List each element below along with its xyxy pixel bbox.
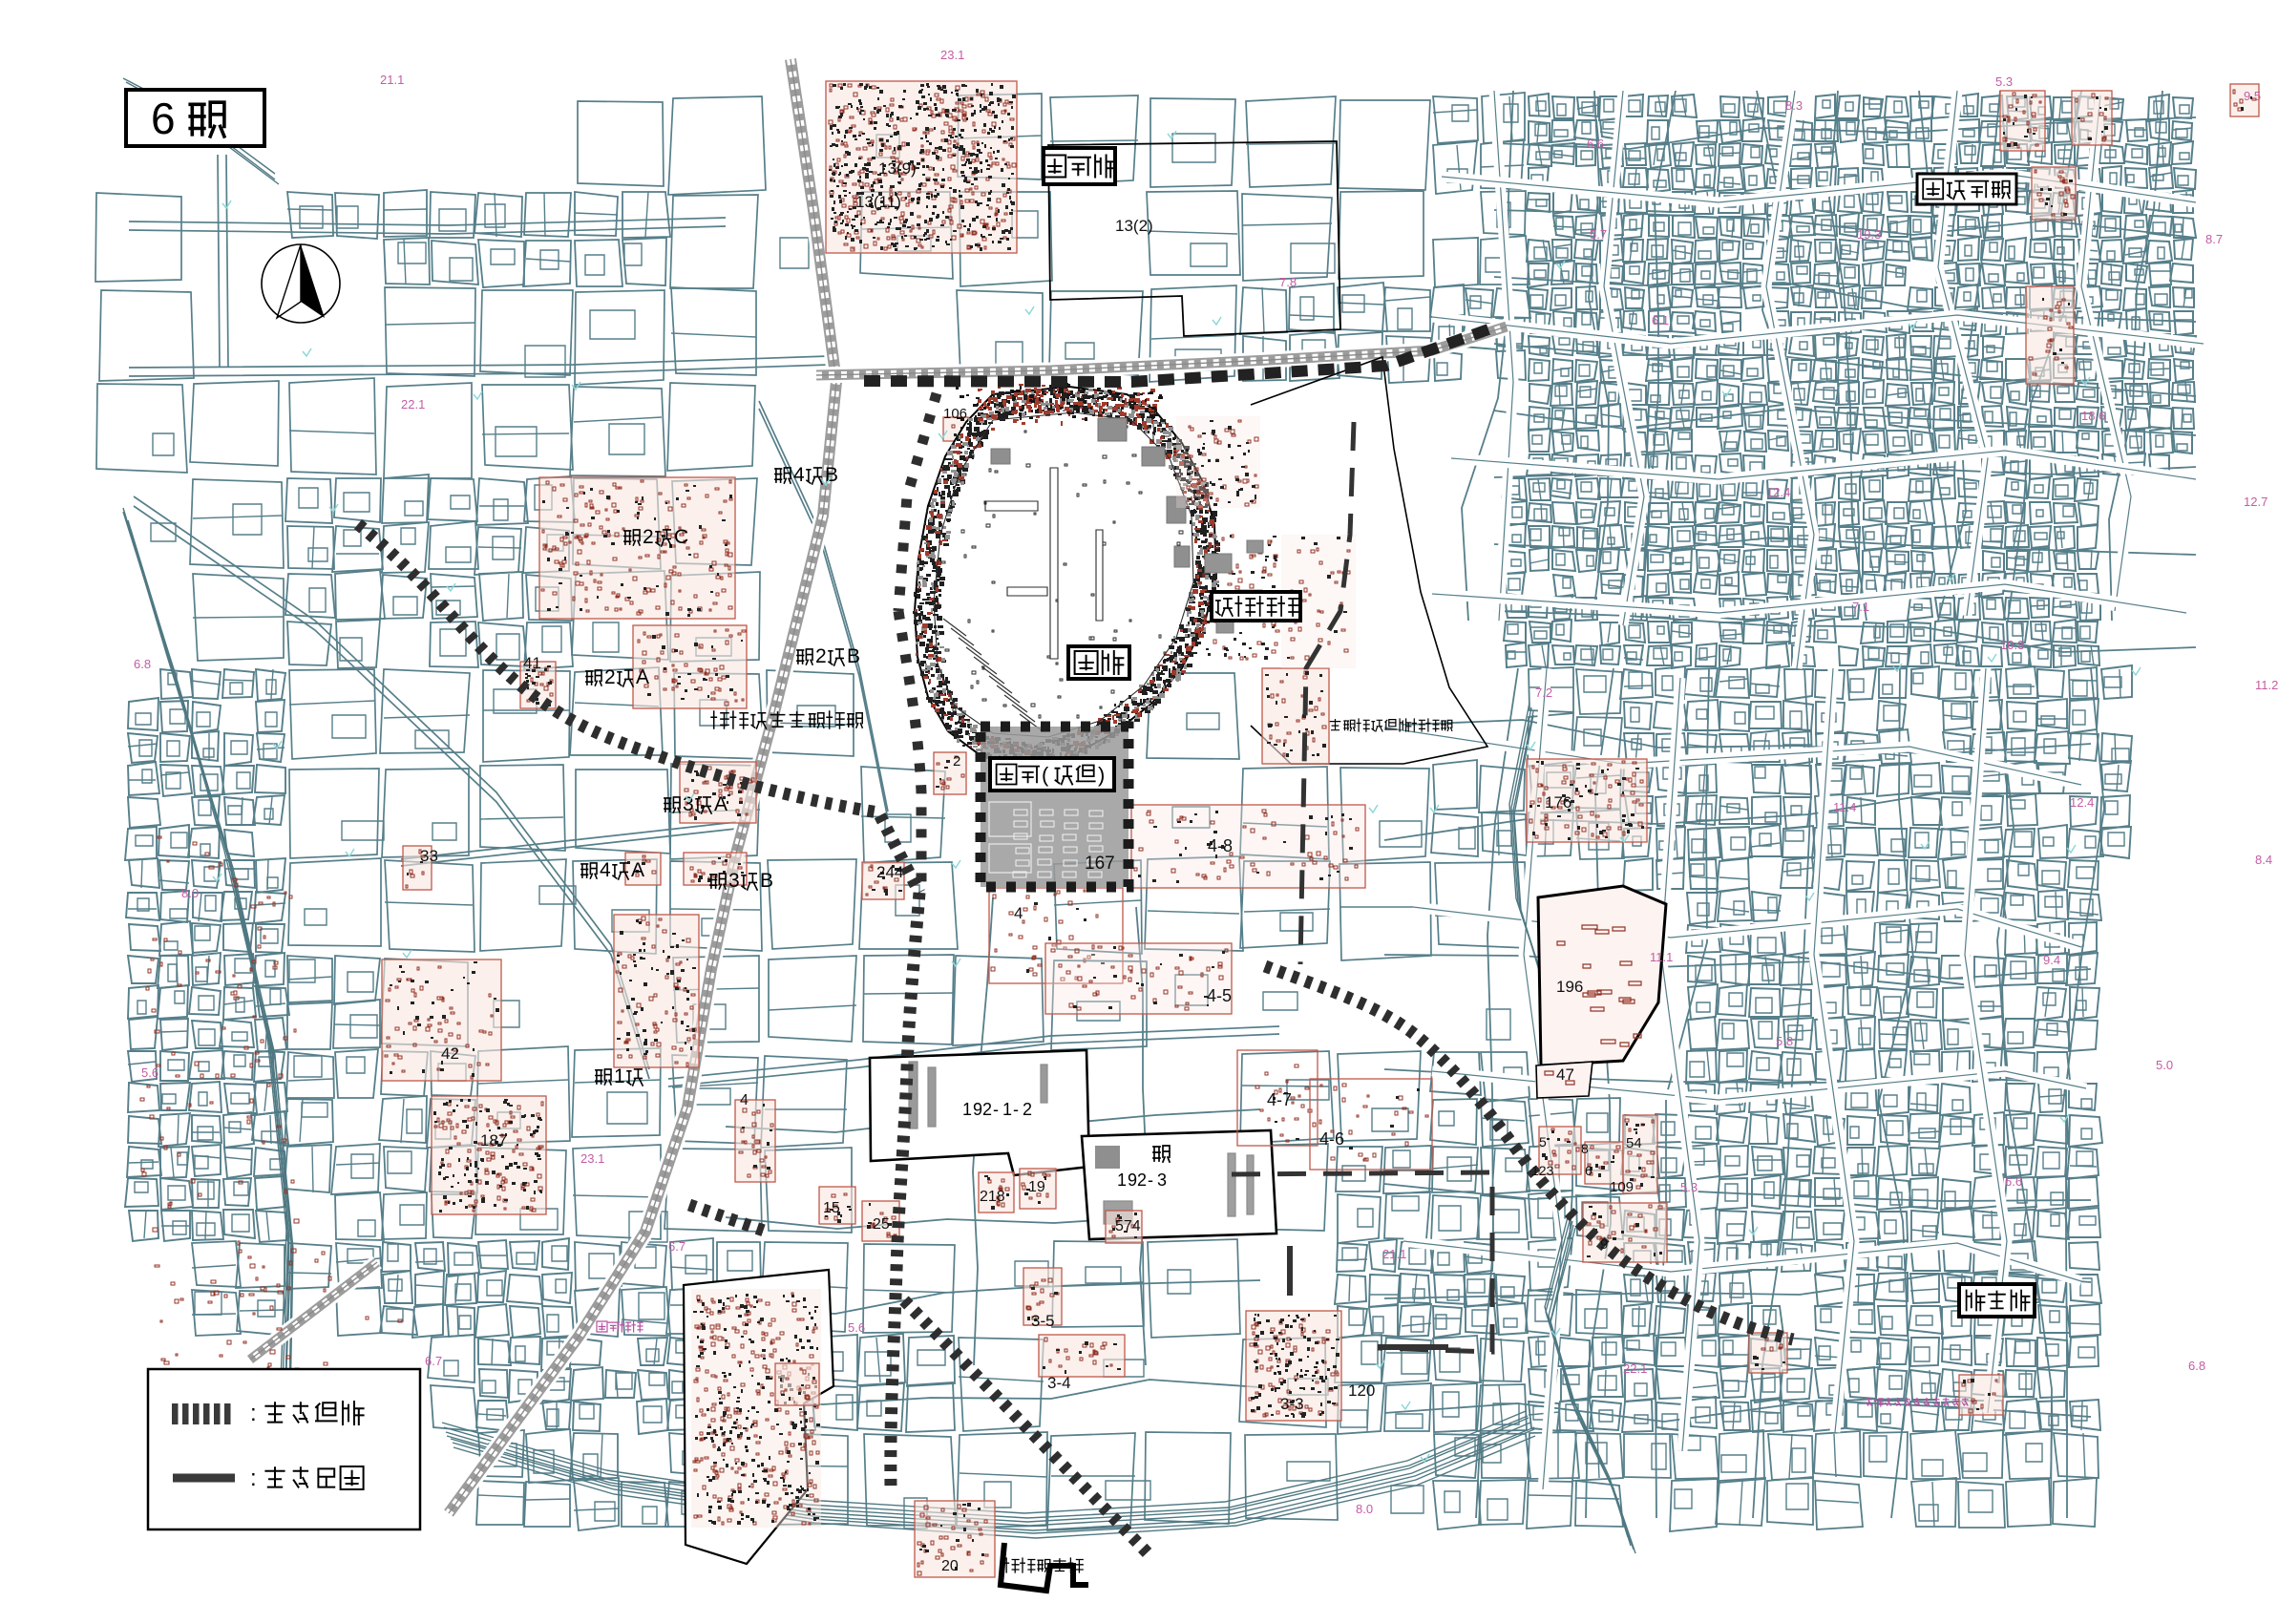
svg-text:7.2: 7.2 [1535, 685, 1552, 700]
svg-text:4-5: 4-5 [1207, 986, 1232, 1005]
svg-text:5: 5 [1539, 1134, 1547, 1149]
svg-text:574: 574 [1115, 1218, 1141, 1234]
svg-text:1: 1 [614, 1065, 625, 1087]
svg-text:6.8: 6.8 [134, 657, 151, 671]
svg-text:19: 19 [1028, 1179, 1045, 1195]
svg-text:5.6: 5.6 [141, 1065, 158, 1080]
svg-text:2: 2 [982, 1100, 992, 1119]
svg-text:3: 3 [728, 870, 740, 892]
svg-text:12.4: 12.4 [2070, 795, 2094, 810]
svg-text:22.1: 22.1 [401, 397, 425, 411]
svg-text:4: 4 [740, 1092, 749, 1108]
svg-text:11.4: 11.4 [1833, 800, 1856, 814]
svg-text:11.1: 11.1 [1650, 950, 1673, 964]
svg-text:2: 2 [604, 666, 616, 688]
svg-text:-: - [1148, 1171, 1153, 1190]
svg-text:6.1: 6.1 [1652, 313, 1669, 327]
svg-text:15: 15 [823, 1200, 840, 1216]
svg-text:13(11): 13(11) [855, 193, 901, 211]
svg-text:23.1: 23.1 [940, 48, 964, 62]
svg-text:12.4: 12.4 [1766, 485, 1790, 499]
svg-text:A: A [631, 859, 644, 881]
svg-text:196: 196 [1556, 978, 1583, 996]
svg-text:12.7: 12.7 [2244, 495, 2267, 509]
svg-text:6.8: 6.8 [2188, 1359, 2205, 1373]
svg-text:4: 4 [793, 464, 805, 486]
svg-text:5.8: 5.8 [1776, 1034, 1793, 1048]
svg-text:-: - [993, 1100, 999, 1119]
svg-text:6.7: 6.7 [668, 1239, 686, 1254]
svg-text:5.3: 5.3 [1995, 74, 2013, 89]
svg-text:4-8: 4-8 [1208, 836, 1233, 855]
svg-text:5.3: 5.3 [1680, 1180, 1698, 1194]
svg-text:3-4: 3-4 [1047, 1374, 1071, 1392]
svg-text:8: 8 [1581, 1141, 1589, 1156]
svg-text::: : [250, 1466, 257, 1491]
svg-text:): ) [1098, 763, 1105, 787]
svg-text:2: 2 [1023, 1100, 1032, 1119]
svg-text:-: - [1013, 1100, 1019, 1119]
svg-text:4: 4 [600, 859, 611, 881]
svg-text:120: 120 [1348, 1381, 1375, 1400]
svg-text:1: 1 [1117, 1171, 1127, 1190]
svg-text:33: 33 [420, 847, 438, 865]
svg-text:106: 106 [943, 406, 967, 422]
svg-text:9: 9 [1600, 1236, 1608, 1253]
svg-text:A: A [714, 793, 728, 815]
svg-text:5.6: 5.6 [848, 1320, 865, 1335]
svg-text:123: 123 [1531, 1163, 1554, 1178]
svg-text:5.0: 5.0 [2156, 1058, 2173, 1072]
svg-text::: : [250, 1401, 257, 1426]
svg-text:244: 244 [876, 863, 903, 881]
svg-text:13(2): 13(2) [1115, 217, 1153, 235]
svg-text:B: B [760, 870, 773, 892]
svg-text:8.0: 8.0 [1356, 1502, 1373, 1516]
svg-text:19.3: 19.3 [1857, 227, 1881, 242]
svg-text:2: 2 [815, 645, 827, 667]
svg-text:13(9): 13(9) [878, 159, 917, 178]
svg-text:(: ( [1042, 763, 1049, 787]
svg-text:2: 2 [643, 526, 654, 548]
svg-text:18.6: 18.6 [2081, 409, 2105, 423]
svg-text:9: 9 [1128, 1171, 1137, 1190]
svg-text:C: C [674, 526, 688, 548]
svg-text:9.4: 9.4 [2043, 953, 2060, 967]
svg-text:2: 2 [953, 753, 960, 770]
svg-text:167: 167 [1085, 854, 1115, 874]
svg-text:21.1: 21.1 [380, 73, 404, 87]
svg-text:1: 1 [1002, 1100, 1012, 1119]
svg-text:22.1: 22.1 [1623, 1361, 1647, 1376]
svg-text:6.7: 6.7 [425, 1354, 442, 1368]
svg-text:54: 54 [1626, 1135, 1642, 1151]
svg-text:5.7: 5.7 [1590, 227, 1607, 242]
svg-text:21.1: 21.1 [1382, 1247, 1406, 1261]
svg-text:218: 218 [980, 1189, 1005, 1205]
svg-text:3-5: 3-5 [1031, 1312, 1055, 1330]
svg-text:11.2: 11.2 [2255, 678, 2278, 692]
svg-text:3-3: 3-3 [1280, 1395, 1304, 1413]
svg-text:8.7: 8.7 [2205, 232, 2223, 246]
svg-text:9: 9 [973, 1100, 982, 1119]
svg-text:7.1: 7.1 [1852, 600, 1869, 614]
svg-text:41: 41 [523, 654, 541, 672]
svg-text:23.1: 23.1 [580, 1151, 604, 1166]
svg-text:2: 2 [1137, 1171, 1147, 1190]
svg-text:6.6: 6.6 [1587, 137, 1604, 151]
svg-text:10.3: 10.3 [2000, 638, 2024, 652]
svg-text:4: 4 [1014, 904, 1023, 922]
svg-text:20: 20 [941, 1558, 959, 1574]
svg-text:4-7: 4-7 [1267, 1090, 1292, 1109]
svg-text:109: 109 [1610, 1179, 1634, 1195]
svg-text:8.3: 8.3 [1785, 98, 1803, 113]
svg-text:6: 6 [1585, 1163, 1592, 1178]
svg-text:6: 6 [151, 94, 176, 143]
svg-text:4-6: 4-6 [1319, 1129, 1344, 1149]
svg-text:1: 1 [962, 1100, 972, 1119]
svg-text:176: 176 [1545, 793, 1571, 812]
svg-text:B: B [847, 645, 860, 667]
svg-text:47: 47 [1556, 1065, 1574, 1084]
svg-text:187: 187 [480, 1131, 507, 1149]
svg-text:8.4: 8.4 [2255, 853, 2272, 867]
svg-text:25: 25 [873, 1216, 890, 1233]
svg-text:9.5: 9.5 [2244, 89, 2261, 103]
svg-text:8.0: 8.0 [181, 886, 199, 900]
svg-text:6.6: 6.6 [2005, 1174, 2022, 1189]
svg-text:3: 3 [1157, 1171, 1167, 1190]
svg-text:42: 42 [441, 1044, 459, 1063]
svg-text:7.8: 7.8 [1279, 275, 1297, 289]
svg-text:A: A [636, 666, 649, 688]
